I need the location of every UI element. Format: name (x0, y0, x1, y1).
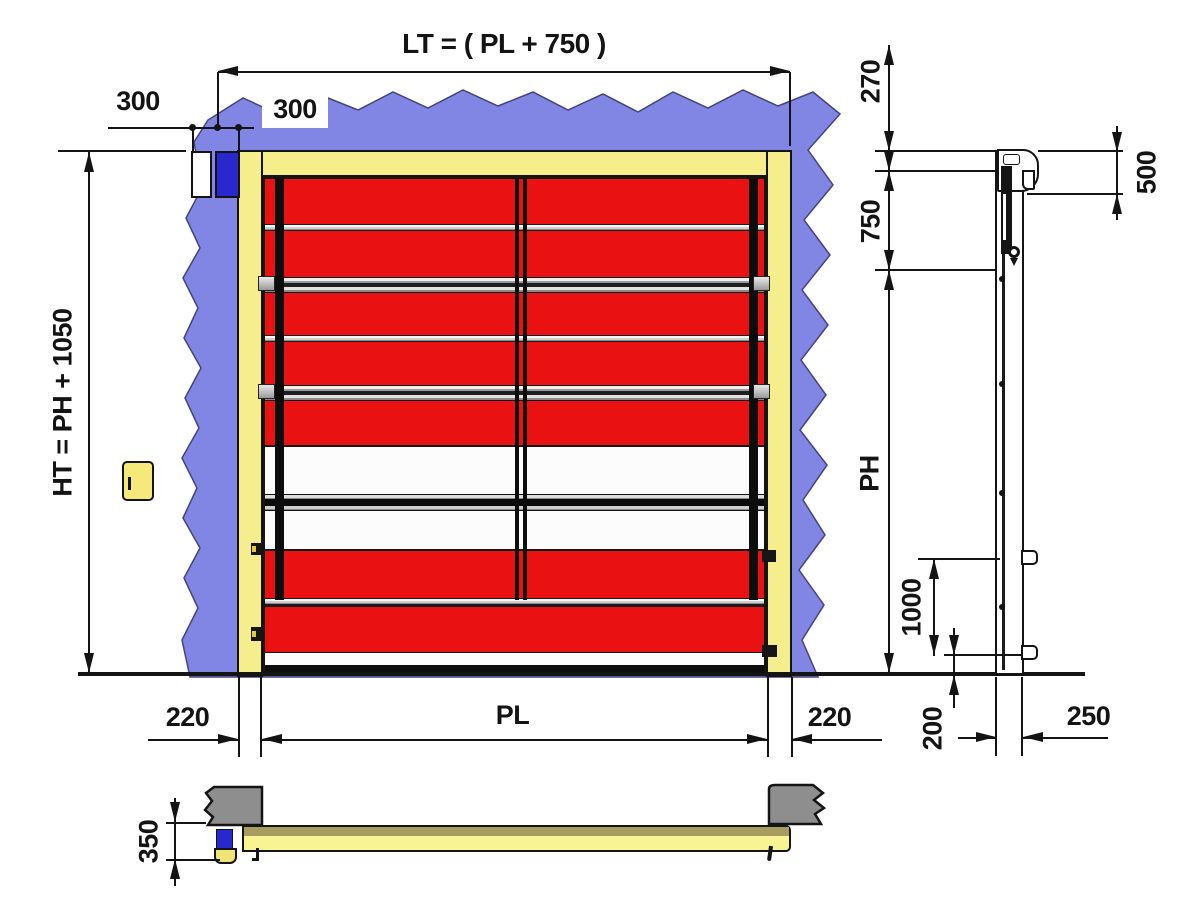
windbar-end-tab (753, 276, 770, 291)
arrowhead (747, 734, 767, 744)
door-frame-lintel (237, 150, 792, 177)
arrowhead (1112, 132, 1122, 152)
side-head-hook (1022, 170, 1035, 190)
section-sill-bar (242, 825, 791, 852)
arrowhead (929, 559, 939, 579)
windbar-end-tab (753, 384, 770, 399)
rail-fixing-dot (999, 381, 1005, 387)
rail-fixing-dot (999, 490, 1005, 496)
floor-line (78, 672, 1085, 676)
extension-line (767, 677, 769, 757)
belt-left (275, 179, 284, 600)
arrowhead (1023, 732, 1043, 742)
tick (238, 129, 240, 151)
arrowhead (884, 151, 894, 171)
dimension-line (88, 152, 90, 675)
dim-750-label: 750 (856, 182, 887, 262)
guide-lock-clip (762, 645, 777, 657)
dim-250-label: 250 (1051, 701, 1126, 732)
door-frame-jamb-left (237, 150, 263, 677)
arrowhead (262, 734, 282, 744)
dim-pl-label: PL (470, 700, 555, 731)
arrowhead (218, 66, 238, 76)
rail-fixing-dot (999, 276, 1005, 282)
extension-line (1027, 193, 1123, 195)
guide-lock-clip (762, 550, 776, 562)
extension-line (789, 72, 791, 146)
arrowhead (976, 732, 996, 742)
arrowhead (929, 635, 939, 655)
dim-350-label: 350 (134, 802, 165, 882)
control-box (122, 461, 154, 501)
section-masonry-right (761, 781, 837, 831)
arrowhead (84, 653, 94, 673)
tick (192, 129, 194, 151)
extension-line (1021, 677, 1023, 756)
dim-500-label: 500 (1132, 133, 1163, 213)
extension-line (238, 677, 240, 757)
section-anchor-pin (767, 846, 773, 861)
door-installation-drawing: LT = ( PL + 750 ) 300 300 HT = PH + 1050 (0, 0, 1196, 906)
extension-line (995, 677, 997, 756)
motor-box (215, 151, 240, 198)
manual-release-box (191, 151, 212, 198)
section-sill-top-face (244, 827, 789, 836)
door-curtain (263, 177, 766, 675)
curtain-slat (265, 607, 764, 652)
extension-line (1038, 150, 1123, 152)
dim-lt-label: LT = ( PL + 750 ) (354, 28, 654, 60)
arrowhead (949, 635, 959, 655)
rail-fixing-dot (999, 604, 1005, 610)
section-anchor-pin (256, 848, 259, 861)
extension-line (260, 677, 262, 757)
dim-220-left-label: 220 (150, 702, 225, 733)
windbar-end-tab (258, 384, 275, 399)
guide-lock-clip (251, 627, 263, 641)
section-release-box (214, 848, 237, 864)
side-head-shaft (1003, 154, 1020, 165)
arrowhead (884, 270, 894, 290)
dim-ph-label: PH (855, 434, 886, 514)
arrowhead (792, 734, 812, 744)
arrowhead (884, 653, 894, 673)
arrowhead (218, 734, 238, 744)
arrowhead (170, 802, 180, 822)
chain-hoist-tail (1010, 258, 1018, 266)
door-frame-jamb-right (766, 150, 792, 677)
dim-270-label: 270 (856, 42, 887, 122)
extension-line (58, 150, 186, 152)
dimension-line (218, 71, 790, 73)
arrowhead (170, 859, 180, 879)
dim-220-right-label: 220 (792, 702, 867, 733)
dim-300-left-label: 300 (98, 86, 178, 117)
chain-hoist-icon (1008, 246, 1020, 258)
section-motor-block (216, 829, 233, 849)
tick-dot (214, 124, 221, 131)
belt-center (515, 179, 527, 600)
dim-300-right-label: 300 (262, 94, 328, 125)
windbar-end-tab (258, 276, 275, 291)
photocell-bracket-lower (1021, 645, 1038, 660)
dim-1000-label: 1000 (897, 563, 928, 653)
dimension-line (262, 739, 767, 741)
section-masonry-left (198, 782, 270, 830)
arrowhead (84, 152, 94, 172)
dim-200-label: 200 (918, 689, 949, 769)
arrowhead (770, 66, 790, 76)
arrowhead (949, 675, 959, 695)
dimension-line (108, 127, 254, 129)
extension-line (166, 822, 206, 824)
guide-lock-clip (251, 543, 262, 555)
arrowhead (1112, 194, 1122, 214)
photocell-bracket-upper (1021, 550, 1038, 565)
dim-300-right-box: 300 (262, 89, 328, 128)
bottom-white-strip (265, 652, 764, 665)
dim-ht-label: HT = PH + 1050 (48, 273, 79, 533)
arrowhead (884, 131, 894, 151)
extension-line (217, 72, 219, 129)
side-rolled-curtain (1001, 166, 1012, 254)
